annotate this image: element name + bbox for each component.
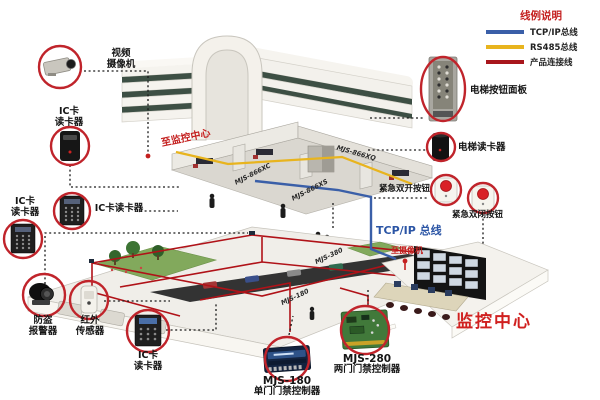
- ic-card-reader-icon: [51, 127, 89, 165]
- ic-reader-2b-label: IC卡读卡器: [90, 203, 148, 214]
- ic-reader-2-label: IC卡 读卡器: [4, 196, 46, 218]
- ic-reader-3-label: IC卡 读卡器: [125, 350, 171, 372]
- mjs180-desc-label: 单门门禁控制器: [237, 386, 337, 397]
- ir-sensor-label: 红外 传感器: [67, 315, 113, 337]
- elevator-card-reader-icon: [427, 133, 455, 162]
- to-camera-label: 至摄像机: [387, 246, 427, 255]
- monitor-center-label: 监控中心: [438, 312, 550, 332]
- alarm-label: 防盗 报警器: [20, 315, 66, 337]
- legend-item-product: 产品连接线: [486, 56, 596, 68]
- legend-item-rs485: RS485总线: [486, 41, 596, 53]
- ic-reader-1-label: IC卡 读卡器: [46, 106, 92, 128]
- mjs280-desc-label: 两门门禁控制器: [325, 364, 409, 375]
- legend-title: 线例说明: [486, 8, 596, 23]
- tcpip-bus-label: TCP/IP 总线: [376, 225, 460, 238]
- product-line-swatch: [486, 60, 524, 64]
- mjs280-controller-icon: [341, 306, 389, 354]
- legend-item-tcpip: TCP/IP总线: [486, 26, 596, 38]
- building: [122, 36, 412, 140]
- elevator-reader-label: 电梯读卡器: [458, 142, 520, 153]
- elevator-panel-label: 电梯按钮面板: [470, 85, 540, 96]
- tcpip-line-swatch: [486, 30, 524, 34]
- people-basement: [310, 307, 315, 320]
- keypad-reader-icon: [4, 220, 42, 258]
- elevator-button-panel-icon: [421, 57, 465, 121]
- building-arch: [192, 36, 262, 140]
- diagram-canvas: 视频 摄像机 IC卡 读卡器 IC卡 读卡器 IC卡读卡器 防盗 报警器 红外 …: [0, 0, 600, 400]
- keypad-reader-icon: [54, 193, 90, 229]
- emergency-open-label: 紧急双开按钮: [379, 184, 437, 194]
- legend: 线例说明 TCP/IP总线 RS485总线 产品连接线: [486, 8, 596, 71]
- video-camera-icon: [39, 46, 81, 88]
- emergency-close-label: 紧急双闭按钮: [452, 210, 512, 220]
- rs485-line-swatch: [486, 45, 524, 49]
- camera-label: 视频 摄像机: [100, 48, 142, 70]
- emergency-close-button-icon: [468, 183, 498, 213]
